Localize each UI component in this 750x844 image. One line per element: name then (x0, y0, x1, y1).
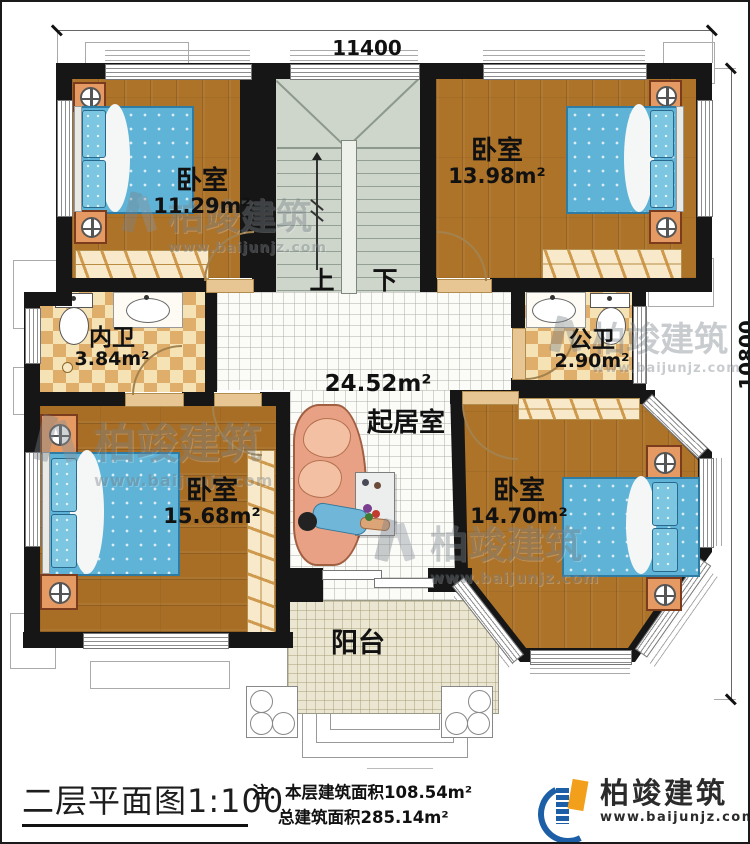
window-left-bedroom (57, 100, 73, 217)
title-underline (22, 824, 248, 827)
window-top-right (483, 64, 647, 80)
dimension-width: 11400 (332, 36, 402, 60)
table-cup (374, 482, 381, 489)
wall-band (56, 278, 206, 292)
nightstand (646, 577, 682, 611)
door-threshold (125, 393, 184, 407)
room-label-living-area: 24.52m² (325, 372, 432, 396)
sink-basin (126, 298, 170, 323)
logo-brand: 柏竣建筑 (600, 778, 750, 810)
extension-line (57, 30, 58, 63)
exterior-ledge (90, 661, 230, 689)
sliding-door-panel (374, 578, 434, 588)
door-threshold (512, 328, 526, 380)
pillow (82, 110, 106, 158)
wardrobe (542, 249, 682, 279)
nightstand (74, 210, 107, 244)
dimension-line-top (57, 30, 713, 31)
extension-line (712, 30, 713, 63)
window-bath-inner (25, 308, 41, 364)
door-threshold (462, 391, 519, 405)
room-label-bedroom-bottomleft: 卧室 15.68m² (163, 478, 261, 527)
sofa-cushion (298, 460, 342, 498)
window-bay-east (699, 458, 714, 548)
room-label-bath-inner: 内卫 3.84m² (75, 326, 150, 370)
wardrobe (75, 250, 209, 279)
window-top-left (105, 64, 252, 80)
pillow (51, 458, 77, 512)
stairs-up-label: 上 (309, 268, 334, 294)
table-flowers (365, 513, 373, 521)
dimension-height: 10800 (735, 310, 750, 400)
table-flowers (372, 510, 380, 518)
wall-band (252, 278, 276, 292)
dimension-line-right (731, 68, 732, 700)
table-flowers (363, 504, 372, 513)
wall-band-mid (182, 392, 214, 406)
nightstand (649, 210, 682, 244)
nightstand (646, 445, 682, 479)
note-line2: 总建筑面积285.14m² (278, 804, 449, 828)
bed-headboard (676, 106, 684, 212)
balcony-column (441, 686, 493, 738)
floor-drain (62, 362, 73, 373)
bed-headboard (42, 452, 50, 574)
note-line1: 注：本层建筑面积108.54m² (252, 779, 472, 803)
wall-balcony-pier-left (285, 568, 323, 602)
pillow (82, 160, 106, 208)
wall-octagon-top (450, 390, 462, 404)
sliding-door-panel (322, 570, 382, 580)
room-label-living: 起居室 (367, 410, 445, 437)
door-threshold (214, 393, 262, 407)
sheet-title: 二层平面图1:100 (22, 776, 284, 822)
wall-band (420, 278, 437, 292)
window-bath-public (633, 306, 647, 384)
nightstand (40, 574, 78, 610)
window-bay-south (530, 650, 632, 665)
pillow (650, 110, 674, 158)
bed-headboard (74, 106, 82, 212)
bay-sill (530, 668, 630, 678)
sink-basin (532, 298, 576, 323)
logo-website: www.baijunjz.com (600, 810, 750, 825)
footer-divider (367, 768, 433, 769)
nightstand (40, 414, 78, 454)
window-right-bedroom (697, 100, 713, 217)
wall-band (490, 278, 712, 292)
logo-mark-icon (540, 778, 592, 836)
room-label-bath-public: 公卫 2.90m² (555, 328, 630, 372)
balcony-column (246, 686, 298, 738)
window-sill (483, 50, 645, 62)
door-threshold (206, 279, 254, 293)
toilet-button (607, 296, 612, 301)
faucet (550, 295, 555, 300)
pillow (652, 482, 678, 526)
wall-bedroom-living (276, 392, 290, 648)
floor-plan-sheet: 11400 10800 (0, 0, 750, 844)
balcony-steps (330, 712, 440, 730)
room-label-bedroom-topright: 卧室 13.98m² (448, 138, 546, 187)
faucet (144, 295, 149, 300)
room-label-bedroom-topleft: 卧室 11.29m² (153, 168, 251, 217)
stair-stringer (341, 140, 357, 294)
pillow (650, 160, 674, 208)
window-bedroom-bl (25, 452, 41, 547)
wardrobe (518, 398, 640, 420)
company-logo: 柏竣建筑 www.baijunjz.com (540, 778, 750, 836)
door-threshold (437, 279, 492, 293)
wall-band-mid (24, 392, 125, 406)
bay-sill (716, 458, 726, 546)
stairs-down-label: 下 (372, 268, 397, 294)
person-head (298, 512, 317, 531)
window-sill (105, 50, 250, 62)
wall-bath-inner-right (205, 292, 217, 392)
pillow (51, 514, 77, 568)
pillow (652, 528, 678, 572)
stair-arrow-head (312, 152, 322, 160)
room-label-bedroom-bottomright: 卧室 14.70m² (470, 478, 568, 527)
window-bedroom-bl-bottom (83, 633, 229, 649)
sofa-cushion (303, 418, 351, 458)
room-label-balcony: 阳台 (331, 630, 385, 658)
wall-bath-public-left (511, 292, 525, 328)
window-stairs (290, 64, 420, 80)
table-cup (362, 479, 369, 486)
wall-stairs-bedroom (420, 63, 436, 278)
